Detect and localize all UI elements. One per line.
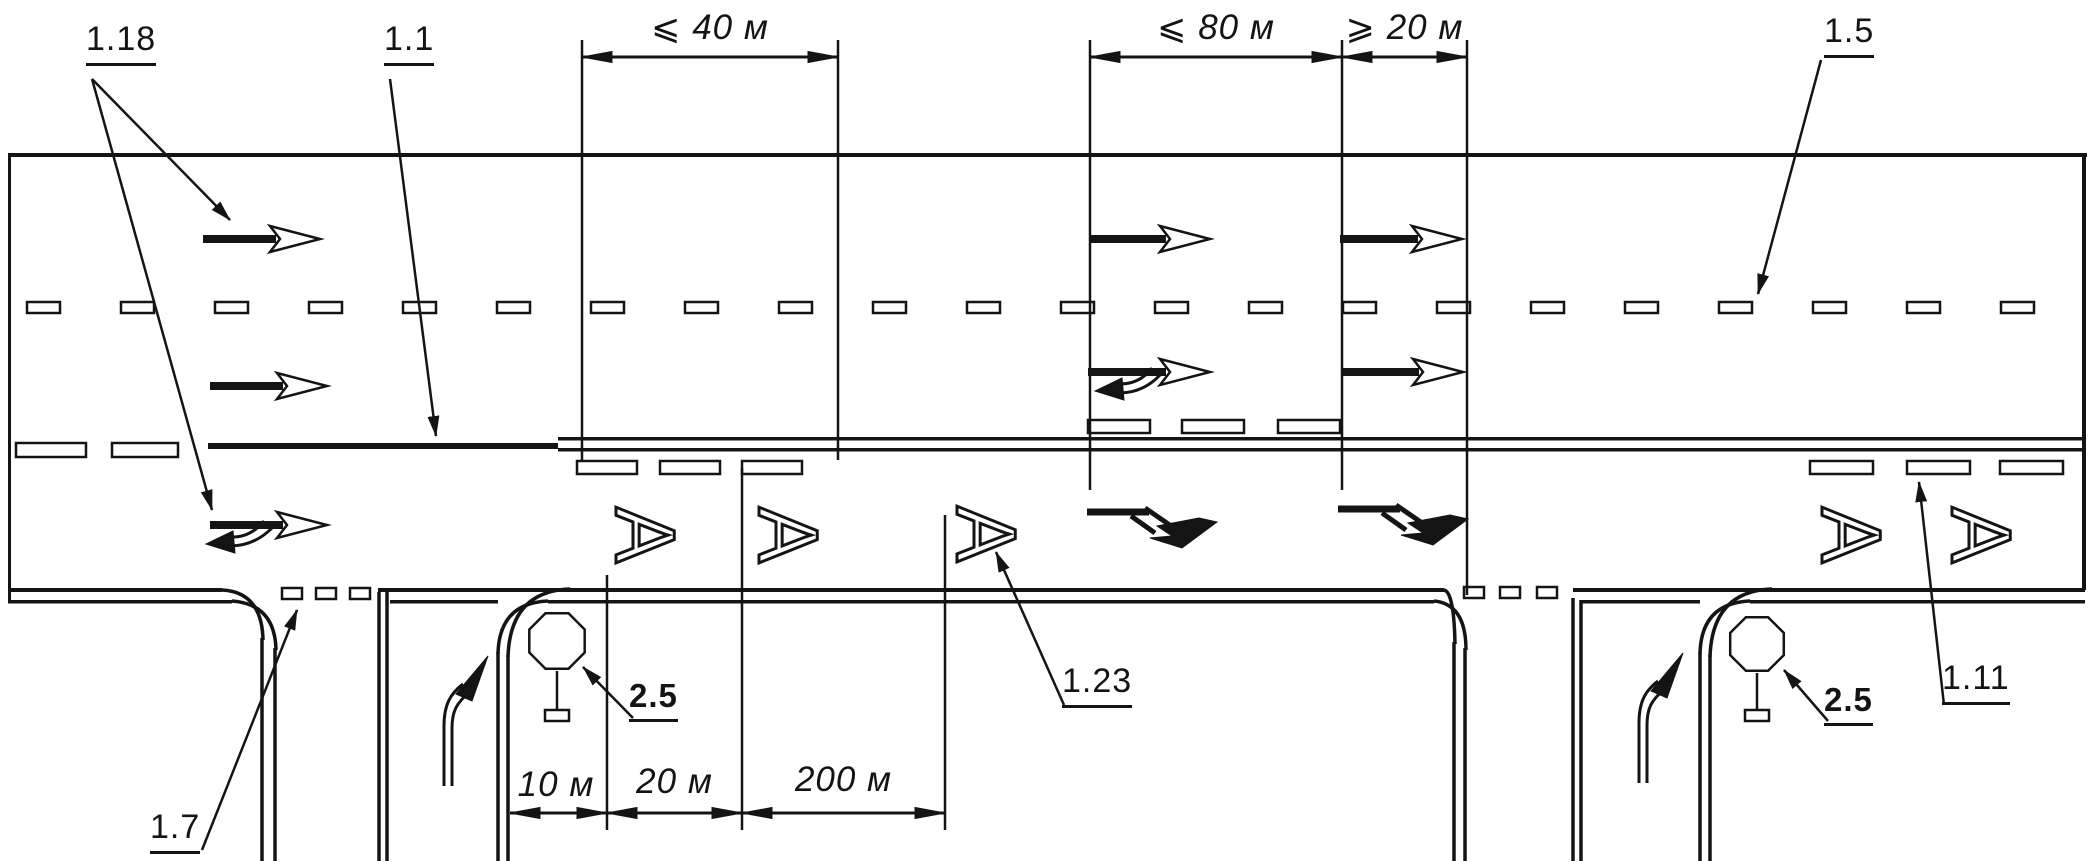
double-line-upper bbox=[558, 437, 2085, 441]
dash-above-line bbox=[1182, 420, 1244, 433]
leader-line bbox=[390, 79, 436, 436]
dash-1-7 bbox=[316, 588, 336, 599]
dim-arrowhead bbox=[742, 808, 772, 819]
kerb-corner-arc bbox=[1434, 601, 1466, 650]
label-marking-1-18: 1.18 bbox=[86, 22, 156, 66]
dim-arrowhead bbox=[577, 808, 607, 819]
dimension-bottom-10m: 10 м bbox=[505, 765, 607, 805]
label-marking-1-1: 1.1 bbox=[384, 22, 434, 66]
road-left-edge bbox=[8, 153, 11, 600]
label-marking-1-11: 1.11 bbox=[1942, 661, 2010, 705]
dash-1-5 bbox=[685, 302, 718, 313]
label-marking-1-23: 1.23 bbox=[1062, 664, 1132, 708]
stop-sign-octagon bbox=[1730, 617, 1784, 671]
arrow-head bbox=[1160, 226, 1210, 252]
leader-line bbox=[996, 552, 1064, 705]
kerb-corner-arc bbox=[222, 590, 263, 640]
diagram-linework: ААААА bbox=[0, 0, 2095, 861]
stop-sign-octagon bbox=[529, 613, 584, 668]
dash-1-5 bbox=[121, 302, 154, 313]
marking-1-11-dashes bbox=[577, 420, 2063, 474]
road-bottom-edge-inner bbox=[1581, 600, 1700, 604]
kerb-corner-arc bbox=[1444, 590, 1455, 644]
merge-hook-head bbox=[206, 531, 235, 553]
dim-arrowhead bbox=[808, 52, 838, 63]
dash-1-7 bbox=[350, 588, 370, 599]
dash-1-5 bbox=[967, 302, 1000, 313]
road-top-edge bbox=[8, 153, 2087, 157]
arrow-head bbox=[1412, 226, 1462, 252]
dash-below-line bbox=[1810, 461, 1873, 474]
sign-base bbox=[1745, 710, 1769, 721]
dash-1-5 bbox=[309, 302, 342, 313]
dash-1-7 bbox=[1500, 587, 1520, 598]
dash-above-line bbox=[1088, 420, 1150, 433]
label-marking-1-7: 1.7 bbox=[150, 810, 200, 854]
lane-arrows bbox=[203, 226, 1468, 553]
dash-1-5 bbox=[2001, 302, 2034, 313]
stop-signs bbox=[529, 613, 1784, 721]
arrow-head bbox=[270, 226, 320, 252]
road-marking-diagram: ААААА ⩽ 40 м ⩽ 80 м ⩾ 20 м 10 м 20 м 200… bbox=[0, 0, 2095, 861]
kerb-corner-arc bbox=[232, 601, 276, 650]
road-bottom-edge-inner bbox=[1750, 600, 2085, 604]
dash-1-5 bbox=[1531, 302, 1564, 313]
dash-1-5 bbox=[1625, 302, 1658, 313]
leader-line bbox=[1784, 670, 1828, 721]
arrow-head bbox=[277, 512, 327, 538]
dash-1-5 bbox=[1155, 302, 1188, 313]
double-line-lower bbox=[558, 448, 2085, 452]
dim-arrowhead bbox=[510, 808, 540, 819]
bus-lane-letter-A: А bbox=[741, 507, 835, 563]
dash-1-5 bbox=[27, 302, 60, 313]
dash-1-5 bbox=[1907, 302, 1940, 313]
turn-arrow-band bbox=[1639, 681, 1665, 783]
dim-arrowhead bbox=[712, 808, 742, 819]
road-bottom-edge-outer bbox=[8, 588, 222, 592]
dash-1-5 bbox=[779, 302, 812, 313]
leader-line bbox=[1758, 60, 1821, 294]
dash-below-line bbox=[1907, 461, 1970, 474]
bus-lane-letter-A: А bbox=[939, 506, 1033, 562]
dim-arrowhead bbox=[915, 808, 945, 819]
bus-lane-letter-A: А bbox=[1934, 507, 2028, 563]
turn-arrow-head bbox=[1651, 653, 1683, 698]
dash-below-line bbox=[2000, 461, 2063, 474]
dash-1-5 bbox=[591, 302, 624, 313]
bus-lane-letter-A: А bbox=[598, 507, 692, 563]
merge-hook-head bbox=[1095, 378, 1124, 400]
dim-arrowhead bbox=[1312, 52, 1342, 63]
dash-1-5 bbox=[1437, 302, 1470, 313]
arrow-head bbox=[277, 373, 327, 399]
marking-1-5-dashed-line bbox=[27, 302, 2034, 313]
dimension-top-20m: ⩾ 20 м bbox=[1342, 8, 1467, 48]
turn-arrow-band bbox=[444, 684, 470, 786]
label-leaders bbox=[92, 60, 1944, 850]
road-bottom-edge-outer bbox=[378, 588, 1444, 592]
dash-below-line bbox=[660, 461, 720, 474]
side-road-intersections bbox=[222, 589, 1772, 861]
marking-1-1-line bbox=[16, 437, 2085, 457]
dim-arrowhead bbox=[582, 52, 612, 63]
marking-1-23-letters: ААААА bbox=[598, 506, 2028, 563]
dash-1-5 bbox=[1813, 302, 1846, 313]
road-bottom-edge-inner bbox=[548, 600, 1434, 604]
dash-1-7 bbox=[282, 588, 302, 599]
dash-1-5 bbox=[497, 302, 530, 313]
dimension-bottom-200m: 200 м bbox=[742, 760, 945, 800]
road-right-edge bbox=[2082, 153, 2086, 590]
dash-below-line bbox=[577, 461, 637, 474]
dash-1-5 bbox=[1343, 302, 1376, 313]
dash-1-5 bbox=[1249, 302, 1282, 313]
dash-1-5 bbox=[215, 302, 248, 313]
dash-above-line bbox=[1278, 420, 1340, 433]
bus-lane-letter-A: А bbox=[1804, 507, 1898, 563]
road-outline bbox=[8, 153, 2087, 604]
label-marking-1-5: 1.5 bbox=[1824, 14, 1874, 58]
label-sign-2-5-left: 2.5 bbox=[629, 679, 678, 722]
bend-arrow-head bbox=[1401, 515, 1468, 545]
dash-1-7 bbox=[1537, 587, 1557, 598]
wide-dash bbox=[16, 443, 86, 457]
sign-base bbox=[545, 710, 569, 721]
dimension-top-40m: ⩽ 40 м bbox=[582, 8, 838, 48]
dim-arrowhead bbox=[1090, 52, 1120, 63]
dash-1-5 bbox=[1719, 302, 1752, 313]
road-bottom-edge-inner bbox=[8, 600, 232, 604]
dash-1-5 bbox=[873, 302, 906, 313]
leader-line bbox=[202, 610, 297, 850]
road-bottom-edge-outer bbox=[1573, 588, 2085, 592]
solid-line-1-1 bbox=[208, 443, 558, 449]
dash-below-line bbox=[742, 461, 802, 474]
dim-arrowhead bbox=[607, 808, 637, 819]
bend-arrow-head bbox=[1150, 518, 1217, 548]
dimension-top-80m: ⩽ 80 м bbox=[1090, 8, 1342, 48]
arrow-head bbox=[1413, 359, 1463, 385]
label-sign-2-5-right: 2.5 bbox=[1824, 683, 1873, 726]
turn-arrow-head bbox=[456, 656, 488, 701]
wide-dash bbox=[112, 443, 178, 457]
dim-arrowhead bbox=[1437, 52, 1467, 63]
road-bottom-edge-inner bbox=[390, 600, 498, 604]
dimension-bottom-20m: 20 м bbox=[607, 762, 742, 802]
dim-arrowhead bbox=[1342, 52, 1372, 63]
arrow-head bbox=[1160, 359, 1210, 385]
